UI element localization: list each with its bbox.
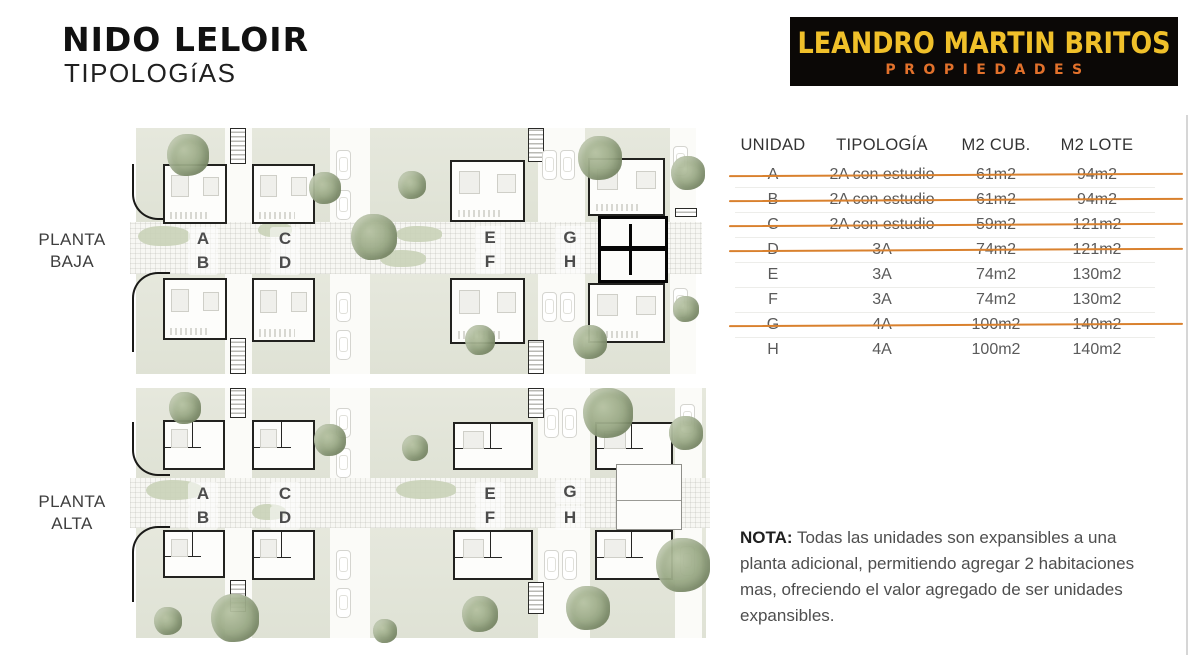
house-unit-plan [163, 530, 225, 578]
tree [167, 134, 209, 176]
furniture-block [636, 171, 656, 189]
house-unit-plan [453, 530, 533, 580]
furniture-block [171, 289, 189, 312]
interior-wall [281, 422, 282, 447]
furniture-block [463, 431, 485, 449]
house-unit-plan [252, 420, 315, 470]
house-unit-plan [453, 422, 533, 470]
tree [578, 136, 622, 180]
table-row: A 2A con estudio 61m2 94m2 [735, 163, 1155, 187]
unit-label: F [475, 506, 505, 530]
unit-label: H [555, 250, 585, 274]
furniture-block [171, 175, 189, 197]
company-tagline: PROPIEDADES [877, 62, 1090, 78]
interior-wall [631, 424, 632, 448]
cell-m2cub: 100m2 [953, 338, 1039, 362]
deck-hatch [596, 204, 641, 211]
tree [583, 388, 633, 438]
furniture-block [463, 539, 485, 558]
unit-label: A [188, 482, 218, 506]
table-row: B 2A con estudio 61m2 94m2 [735, 187, 1155, 212]
house-unit-plan [252, 164, 315, 224]
unit-label: G [555, 226, 585, 250]
tree [573, 325, 607, 359]
tree [465, 325, 495, 355]
parked-car [562, 550, 577, 580]
cell-tipologia: 3A [811, 263, 953, 287]
parked-car [336, 150, 351, 180]
tree [462, 596, 498, 632]
cell-m2cub: 74m2 [953, 263, 1039, 287]
tree [656, 538, 710, 592]
table-row: D 3A 74m2 121m2 [735, 237, 1155, 262]
furniture-block [459, 290, 479, 314]
parked-car [544, 408, 559, 438]
parked-car [560, 292, 575, 322]
tree [566, 586, 610, 630]
page-edge-divider [1186, 115, 1188, 655]
cell-unidad: H [735, 338, 811, 362]
tree [154, 607, 182, 635]
unit-label: A [188, 227, 218, 251]
house-unit-plan [252, 530, 315, 580]
interior-wall [192, 532, 193, 556]
furniture-block [171, 539, 188, 557]
garage-hatch-strip [528, 340, 544, 374]
interior-wall [490, 532, 491, 557]
tree [673, 296, 699, 322]
unit-label: H [555, 506, 585, 530]
interior-wall [631, 532, 632, 557]
planta-alta-label: PLANTA ALTA [24, 491, 120, 535]
unit-label: E [475, 226, 505, 250]
tree [373, 619, 397, 643]
units-table-header: UNIDAD TIPOLOGÍA M2 CUB. M2 LOTE [735, 136, 1155, 155]
unit-label: D [270, 251, 300, 275]
furniture-block [497, 292, 516, 313]
shrub [138, 226, 190, 246]
col-header-m2lote: M2 LOTE [1039, 136, 1155, 155]
cell-tipologia: 4A [811, 338, 953, 362]
open-lot-outline [616, 464, 682, 530]
cell-m2cub: 74m2 [953, 288, 1039, 312]
interior-wall [281, 532, 282, 557]
col-header-tipologia: TIPOLOGÍA [811, 136, 953, 155]
parked-car [336, 588, 351, 618]
planta-baja-label: PLANTA BAJA [24, 229, 120, 273]
tree [309, 172, 341, 204]
furniture-block [597, 294, 618, 316]
table-row: F 3A 74m2 130m2 [735, 287, 1155, 312]
tree [669, 416, 703, 450]
table-row: E 3A 74m2 130m2 [735, 262, 1155, 287]
unit-label: F [475, 250, 505, 274]
col-header-m2cub: M2 CUB. [953, 136, 1039, 155]
cell-m2lote: 130m2 [1039, 263, 1155, 287]
deck-hatch [458, 210, 502, 218]
cell-m2lote: 140m2 [1039, 338, 1155, 362]
tree [211, 594, 259, 642]
unit-label: B [188, 506, 218, 530]
deck-hatch [259, 212, 296, 219]
note-label: NOTA: [740, 528, 793, 547]
interior-wall [490, 424, 491, 448]
furniture-block [459, 171, 479, 194]
detailed-duplex-unit [598, 216, 668, 283]
tree [169, 392, 201, 424]
parked-car [562, 408, 577, 438]
house-unit-plan [450, 160, 525, 222]
unit-label: G [555, 480, 585, 504]
furniture-block [203, 177, 219, 196]
furniture-block [260, 539, 277, 558]
cell-tipologia: 3A [811, 288, 953, 312]
deck-hatch [170, 212, 207, 219]
house-unit-plan [163, 278, 227, 340]
deck-hatch [170, 328, 207, 336]
cell-unidad: F [735, 288, 811, 312]
furniture-block [497, 174, 516, 193]
page-title: NIDO LELOIR [62, 20, 309, 59]
shrub [396, 226, 442, 242]
furniture-block [260, 175, 277, 197]
furniture-block [260, 429, 277, 448]
planta-alta-label-line1: PLANTA [38, 492, 105, 511]
page-subtitle: TIPOLOGíAS [64, 58, 237, 89]
garage-hatch-strip [230, 388, 246, 418]
note-text: NOTA: Todas las unidades son expansibles… [740, 525, 1150, 629]
garage-hatch-strip [528, 388, 544, 418]
parked-car [336, 330, 351, 360]
parked-car [544, 550, 559, 580]
planta-alta-site-plan: ABCDEFGH [130, 388, 710, 650]
furniture-block [171, 429, 188, 448]
furniture-block [291, 177, 307, 196]
planta-alta-label-line2: ALTA [51, 514, 93, 533]
garage-hatch-strip [230, 338, 246, 374]
planta-baja-label-line2: BAJA [50, 252, 94, 271]
parked-car [336, 550, 351, 580]
parked-car [542, 292, 557, 322]
cell-m2lote: 130m2 [1039, 288, 1155, 312]
parked-car [560, 150, 575, 180]
planta-baja-site-plan: ABCDEFGH [130, 128, 702, 374]
house-unit-plan [252, 278, 315, 342]
interior-wall [192, 422, 193, 447]
cell-unidad: E [735, 263, 811, 287]
unit-label: E [475, 482, 505, 506]
tree [402, 435, 428, 461]
parked-car [336, 292, 351, 322]
unit-label: B [188, 251, 218, 275]
tree [351, 214, 397, 260]
unit-label: C [270, 482, 300, 506]
tree [398, 171, 426, 199]
furniture-block [636, 296, 656, 315]
units-table: UNIDAD TIPOLOGÍA M2 CUB. M2 LOTE A 2A co… [735, 136, 1155, 362]
furniture-block [260, 290, 277, 314]
garage-hatch-strip [675, 208, 697, 217]
company-name: LEANDRO MARTIN BRITOS [797, 26, 1170, 60]
planta-baja-label-line1: PLANTA [38, 230, 105, 249]
furniture-block [203, 292, 219, 311]
garage-hatch-strip [528, 582, 544, 614]
deck-hatch [259, 329, 296, 337]
furniture-block [291, 292, 307, 312]
table-row: H 4A 100m2 140m2 [735, 337, 1155, 362]
table-row: G 4A 100m2 140m2 [735, 312, 1155, 337]
unit-label: D [270, 506, 300, 530]
furniture-block [604, 539, 625, 558]
col-header-unidad: UNIDAD [735, 136, 811, 155]
note-body: Todas las unidades son expansibles a una… [740, 528, 1134, 625]
company-logo: LEANDRO MARTIN BRITOS PROPIEDADES [790, 17, 1178, 86]
tree [314, 424, 346, 456]
garage-hatch-strip [230, 128, 246, 164]
unit-label: C [270, 227, 300, 251]
table-row: C 2A con estudio 59m2 121m2 [735, 212, 1155, 237]
tree [671, 156, 705, 190]
house-unit-plan [163, 420, 225, 470]
parked-car [542, 150, 557, 180]
shrub [396, 480, 456, 499]
